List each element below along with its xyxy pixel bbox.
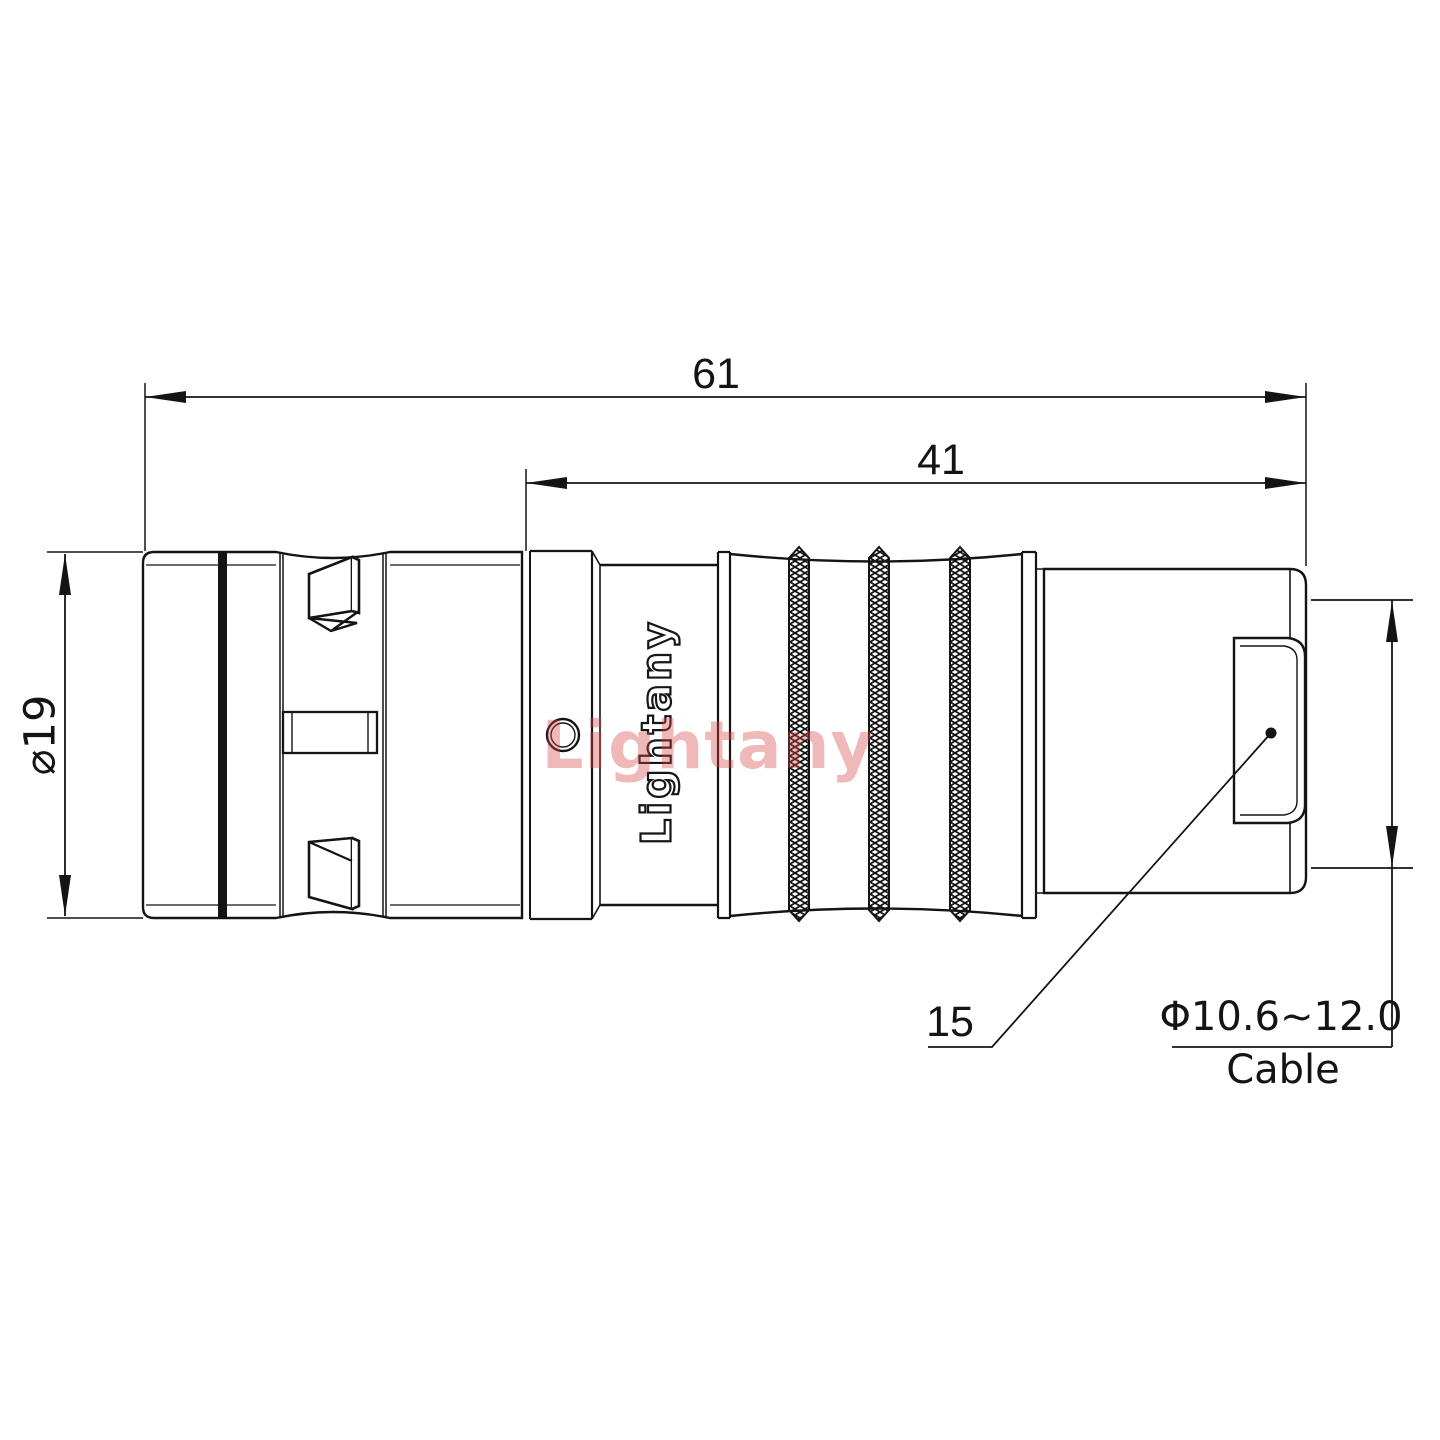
technical-drawing-canvas: 61 41 ⌀19 Lightany 15 Φ10.6~12.0 Cable L… [0,0,1440,1440]
dim-overall-length-label: 61 [692,353,740,396]
knurl-right-cap [1022,552,1036,918]
cable-spec-label: Φ10.6~12.0 [1159,997,1402,1037]
front-shell-black-band [218,552,227,918]
bottom-latch [309,838,359,909]
dim-body-diameter-label: ⌀19 [20,695,63,776]
leader-ref-label: 15 [926,1001,974,1044]
dim-rear-length-label: 41 [917,439,965,482]
dim-overall-length [145,383,1306,566]
cable-caption-label: Cable [1226,1050,1340,1090]
cable-bushing [1234,638,1305,823]
dim-rear-length [526,469,1306,551]
key-block [283,712,377,753]
watermark-text: Lightany [541,713,874,779]
